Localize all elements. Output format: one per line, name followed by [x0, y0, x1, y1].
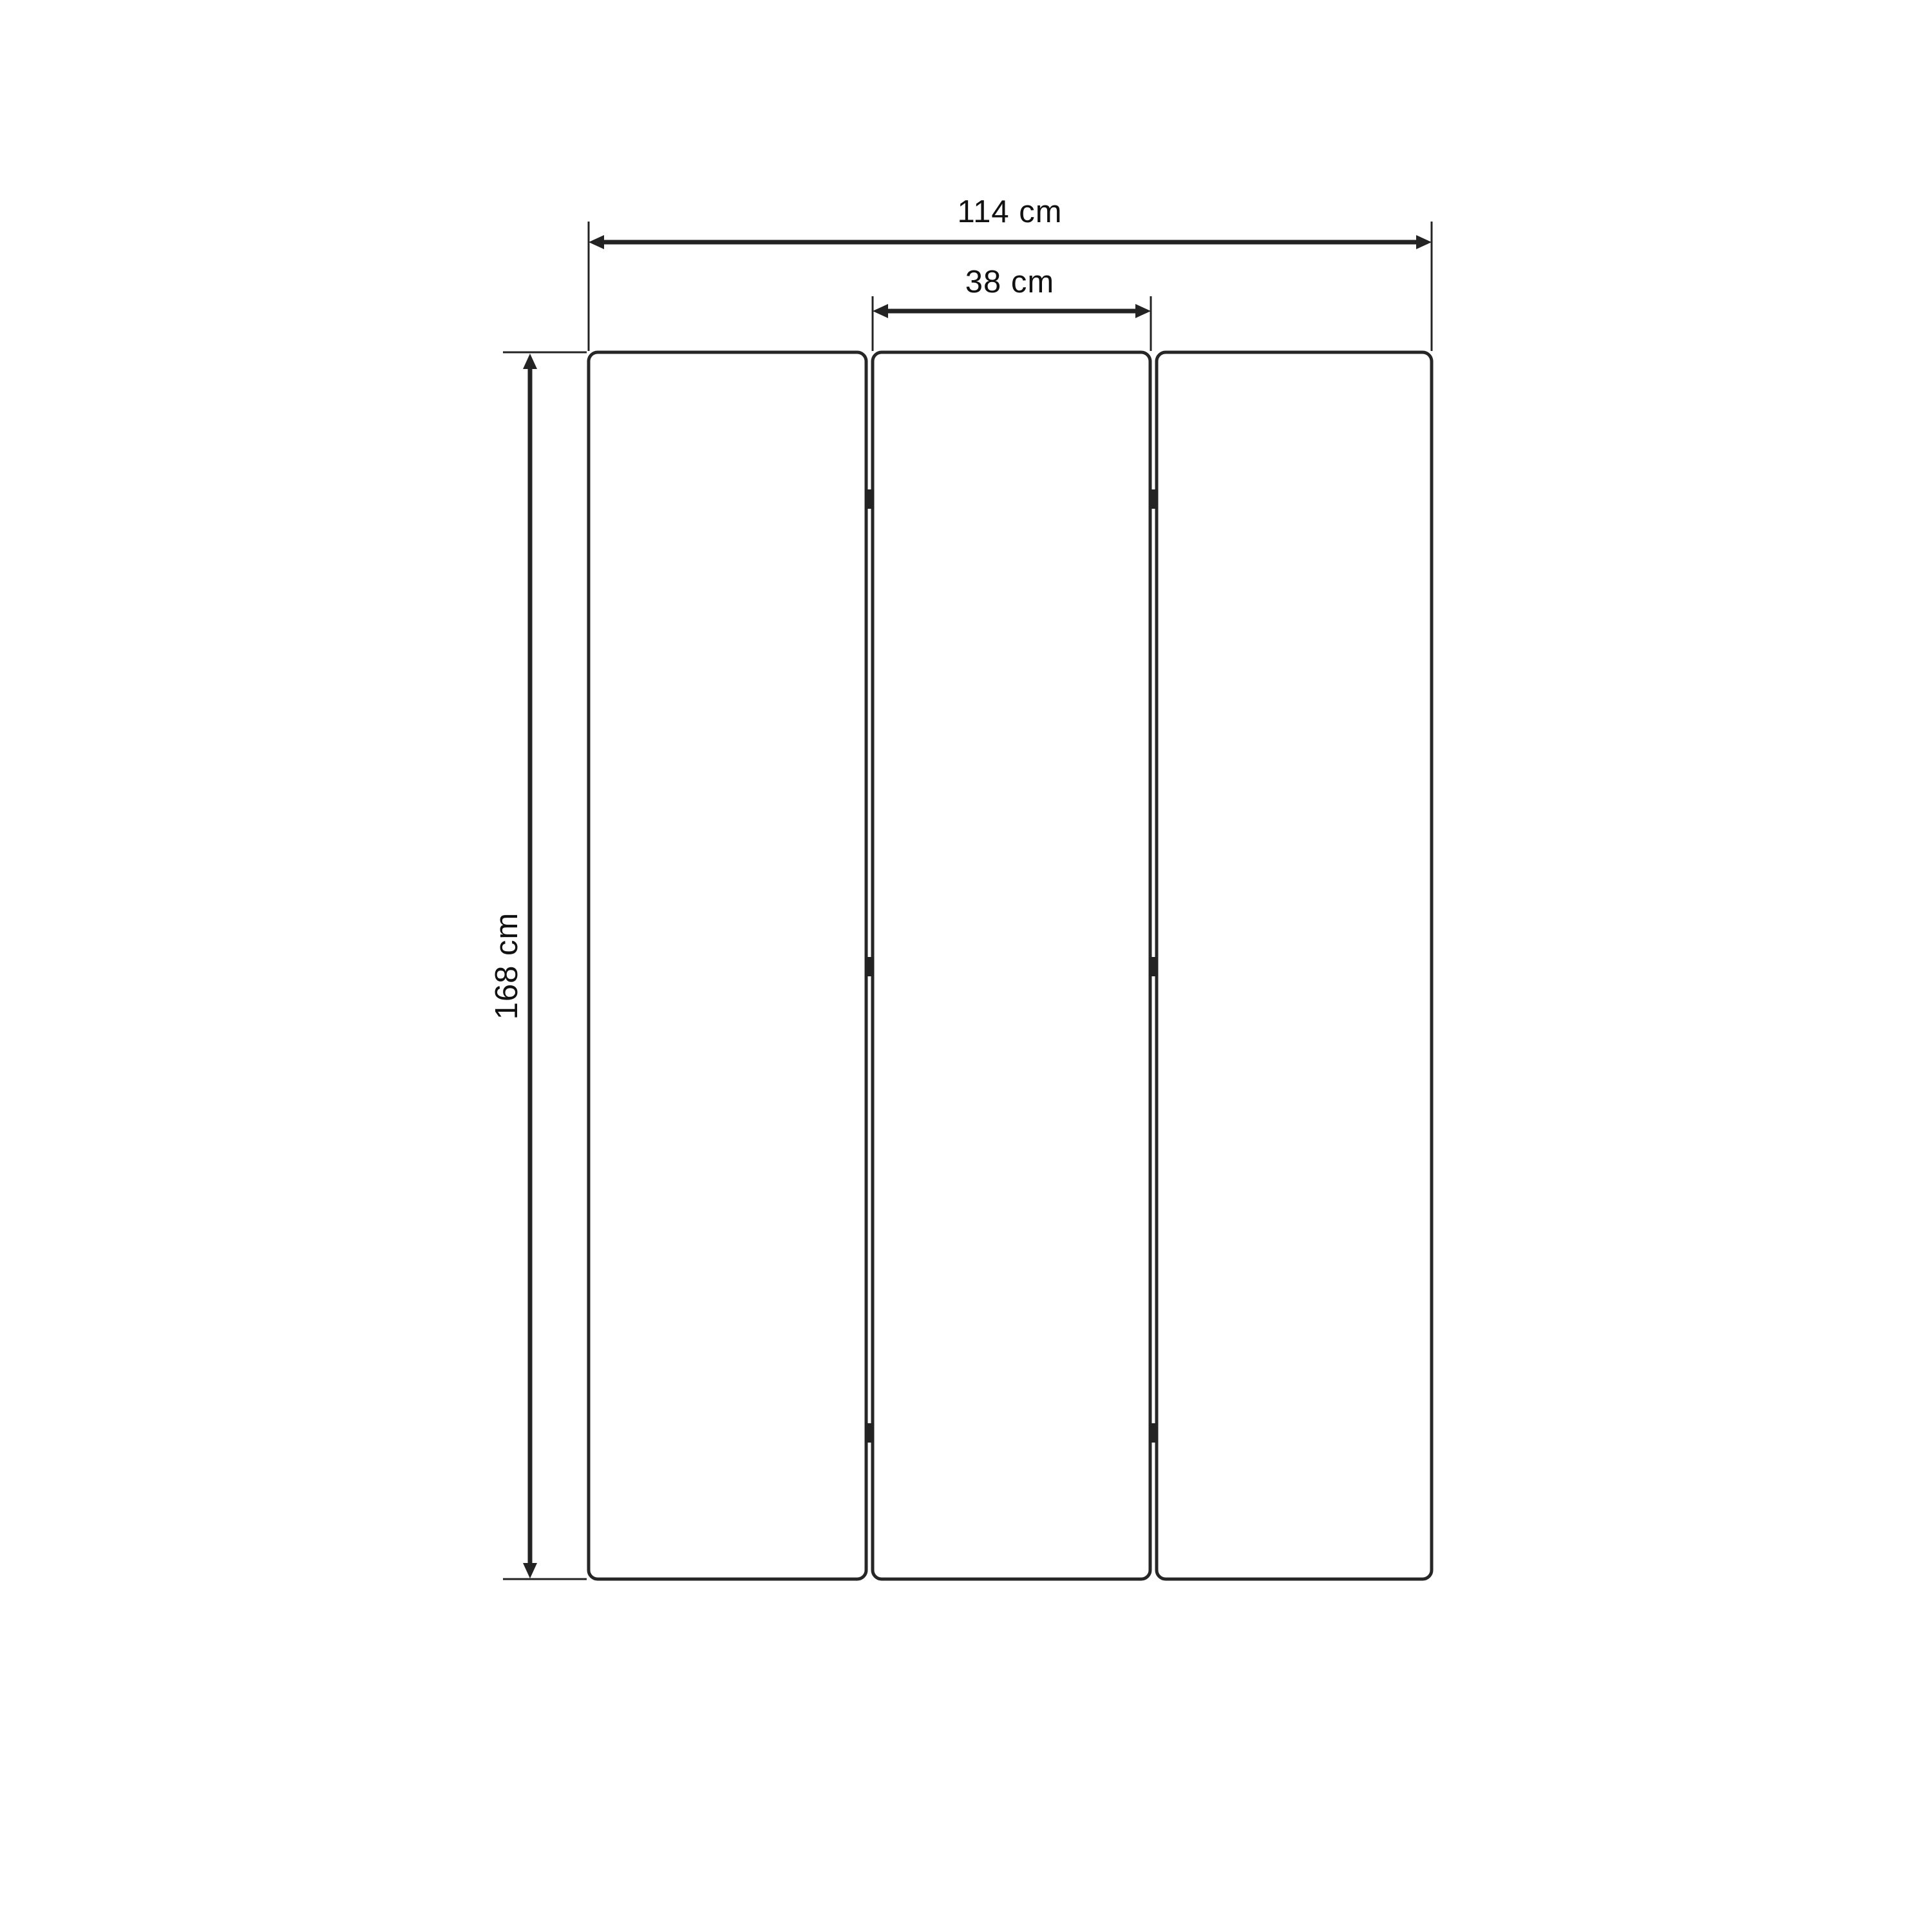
arrowhead-right — [1416, 235, 1432, 249]
arrowhead-right — [1135, 304, 1151, 318]
technical-drawing-canvas: 114 cm 38 cm 168 cm — [0, 0, 1932, 1932]
panel-width-label: 38 cm — [965, 265, 1054, 299]
hinge-mark-right-top — [1149, 489, 1158, 509]
hinge-mark-right-middle — [1149, 957, 1158, 976]
dimension-panel-width: 38 cm — [873, 265, 1151, 351]
total-width-label: 114 cm — [957, 194, 1062, 229]
hinge-mark-left-bottom — [865, 1423, 874, 1443]
three-panel-screen-drawing: 114 cm 38 cm 168 cm — [0, 0, 1932, 1932]
panels — [589, 352, 1432, 1579]
arrowhead-top — [523, 354, 537, 369]
arrowhead-bottom — [523, 1563, 537, 1578]
hinge-mark-left-middle — [865, 957, 874, 976]
arrowhead-left — [873, 304, 888, 318]
panel-right — [1157, 352, 1432, 1579]
height-label: 168 cm — [489, 913, 524, 1020]
hinge-mark-right-bottom — [1149, 1423, 1158, 1443]
hinge-mark-left-top — [865, 489, 874, 509]
panel-middle — [873, 352, 1150, 1579]
arrowhead-left — [589, 235, 604, 249]
panel-left — [589, 352, 866, 1579]
dimension-height: 168 cm — [489, 352, 587, 1579]
